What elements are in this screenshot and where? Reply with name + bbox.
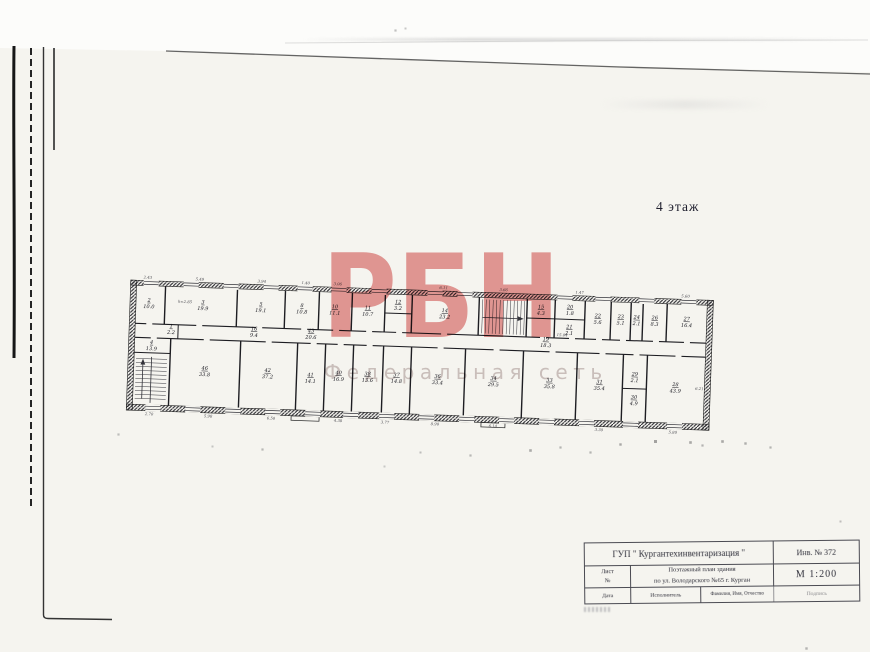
document-title-cell: Поэтажный план здания по ул. Володарског…	[630, 564, 773, 586]
dimension-label: 1.47	[575, 290, 584, 295]
scale-cell: М 1:200	[773, 564, 859, 586]
dimension-label: 2.43	[143, 275, 153, 280]
scan-noise-specks	[0, 0, 1, 1]
dimension-label: h=2.85	[178, 299, 193, 305]
dimension-label: 5.80	[668, 429, 677, 434]
room-label: 169.4	[250, 326, 258, 339]
dimension-label: 5.49	[196, 276, 205, 281]
room-label: 4237.2	[262, 368, 274, 381]
room-label: 2716.4	[681, 316, 693, 329]
inventory-number: Инв. № 372	[773, 541, 859, 564]
stairs-left	[135, 356, 168, 403]
dimension-label: 1.40	[301, 280, 310, 285]
sheet-label: Лист	[601, 568, 614, 577]
dimension-label: 5.98	[204, 413, 213, 418]
executor-label: Исполнитель	[630, 587, 700, 603]
watermark-logo: РБН	[322, 240, 560, 356]
watermark-tagline: Федеральная сеть	[324, 360, 608, 384]
floor-label: 4 этаж	[656, 199, 699, 215]
dimension-label: 5.60	[681, 293, 690, 298]
room-label: 225.6	[593, 313, 602, 326]
dimension-label: 3.94	[258, 279, 267, 284]
dimension-label: 4.38	[333, 418, 343, 423]
dimension-label: 6.50	[267, 415, 276, 420]
date-label: Дата	[585, 588, 630, 603]
scanner-background	[0, 0, 870, 72]
room-label: 519.1	[255, 301, 267, 314]
room-label: 413.9	[146, 340, 158, 353]
room-label: 304.9	[629, 395, 639, 408]
title-block: ГУП " Кургантехинвентаризация " Инв. № 3…	[584, 540, 861, 605]
dimension-label: 2.70	[144, 411, 154, 416]
dimension-label: 8.90	[431, 421, 440, 426]
sheet-number-sign: №	[605, 577, 611, 586]
room-label: 4633.8	[199, 366, 211, 379]
room-label: 2843.9	[669, 382, 682, 395]
room-label: 242.1	[631, 315, 640, 328]
room-label: 12.2	[166, 323, 175, 336]
room-label: 319.9	[197, 299, 209, 312]
room-label: 235.1	[616, 314, 625, 327]
room-label: 4114.1	[305, 372, 317, 385]
organization-name: ГУП " Кургантехинвентаризация "	[585, 541, 773, 565]
room-label: 810.8	[296, 303, 308, 316]
room-label: 292.1	[629, 372, 638, 385]
room-label: 268.3	[650, 315, 659, 328]
scan-streak	[600, 100, 770, 109]
room-label: 210.0	[143, 298, 155, 311]
dimension-label: 6.21	[695, 386, 704, 391]
dimension-label: 3.30	[595, 427, 604, 432]
room-label: 201.8	[566, 304, 575, 317]
scan-streak	[300, 38, 860, 41]
document-address: по ул. Володарского №65 г. Курган	[654, 575, 750, 586]
binding-lines	[14, 46, 112, 620]
signature-label: Подпись	[773, 586, 859, 602]
dimension-label: 3.77	[381, 419, 390, 424]
dimension-label: 6.14	[489, 423, 498, 428]
fullname-label: Фамилия, Имя, Отчество	[700, 586, 773, 602]
scanned-floorplan-page: { "page": { "floor_label": "4 этаж" }, "…	[0, 0, 870, 652]
sheet-number-cell: Лист №	[585, 566, 630, 587]
illegible-date-smudge	[584, 607, 611, 612]
document-title: Поэтажный план здания	[668, 565, 735, 576]
